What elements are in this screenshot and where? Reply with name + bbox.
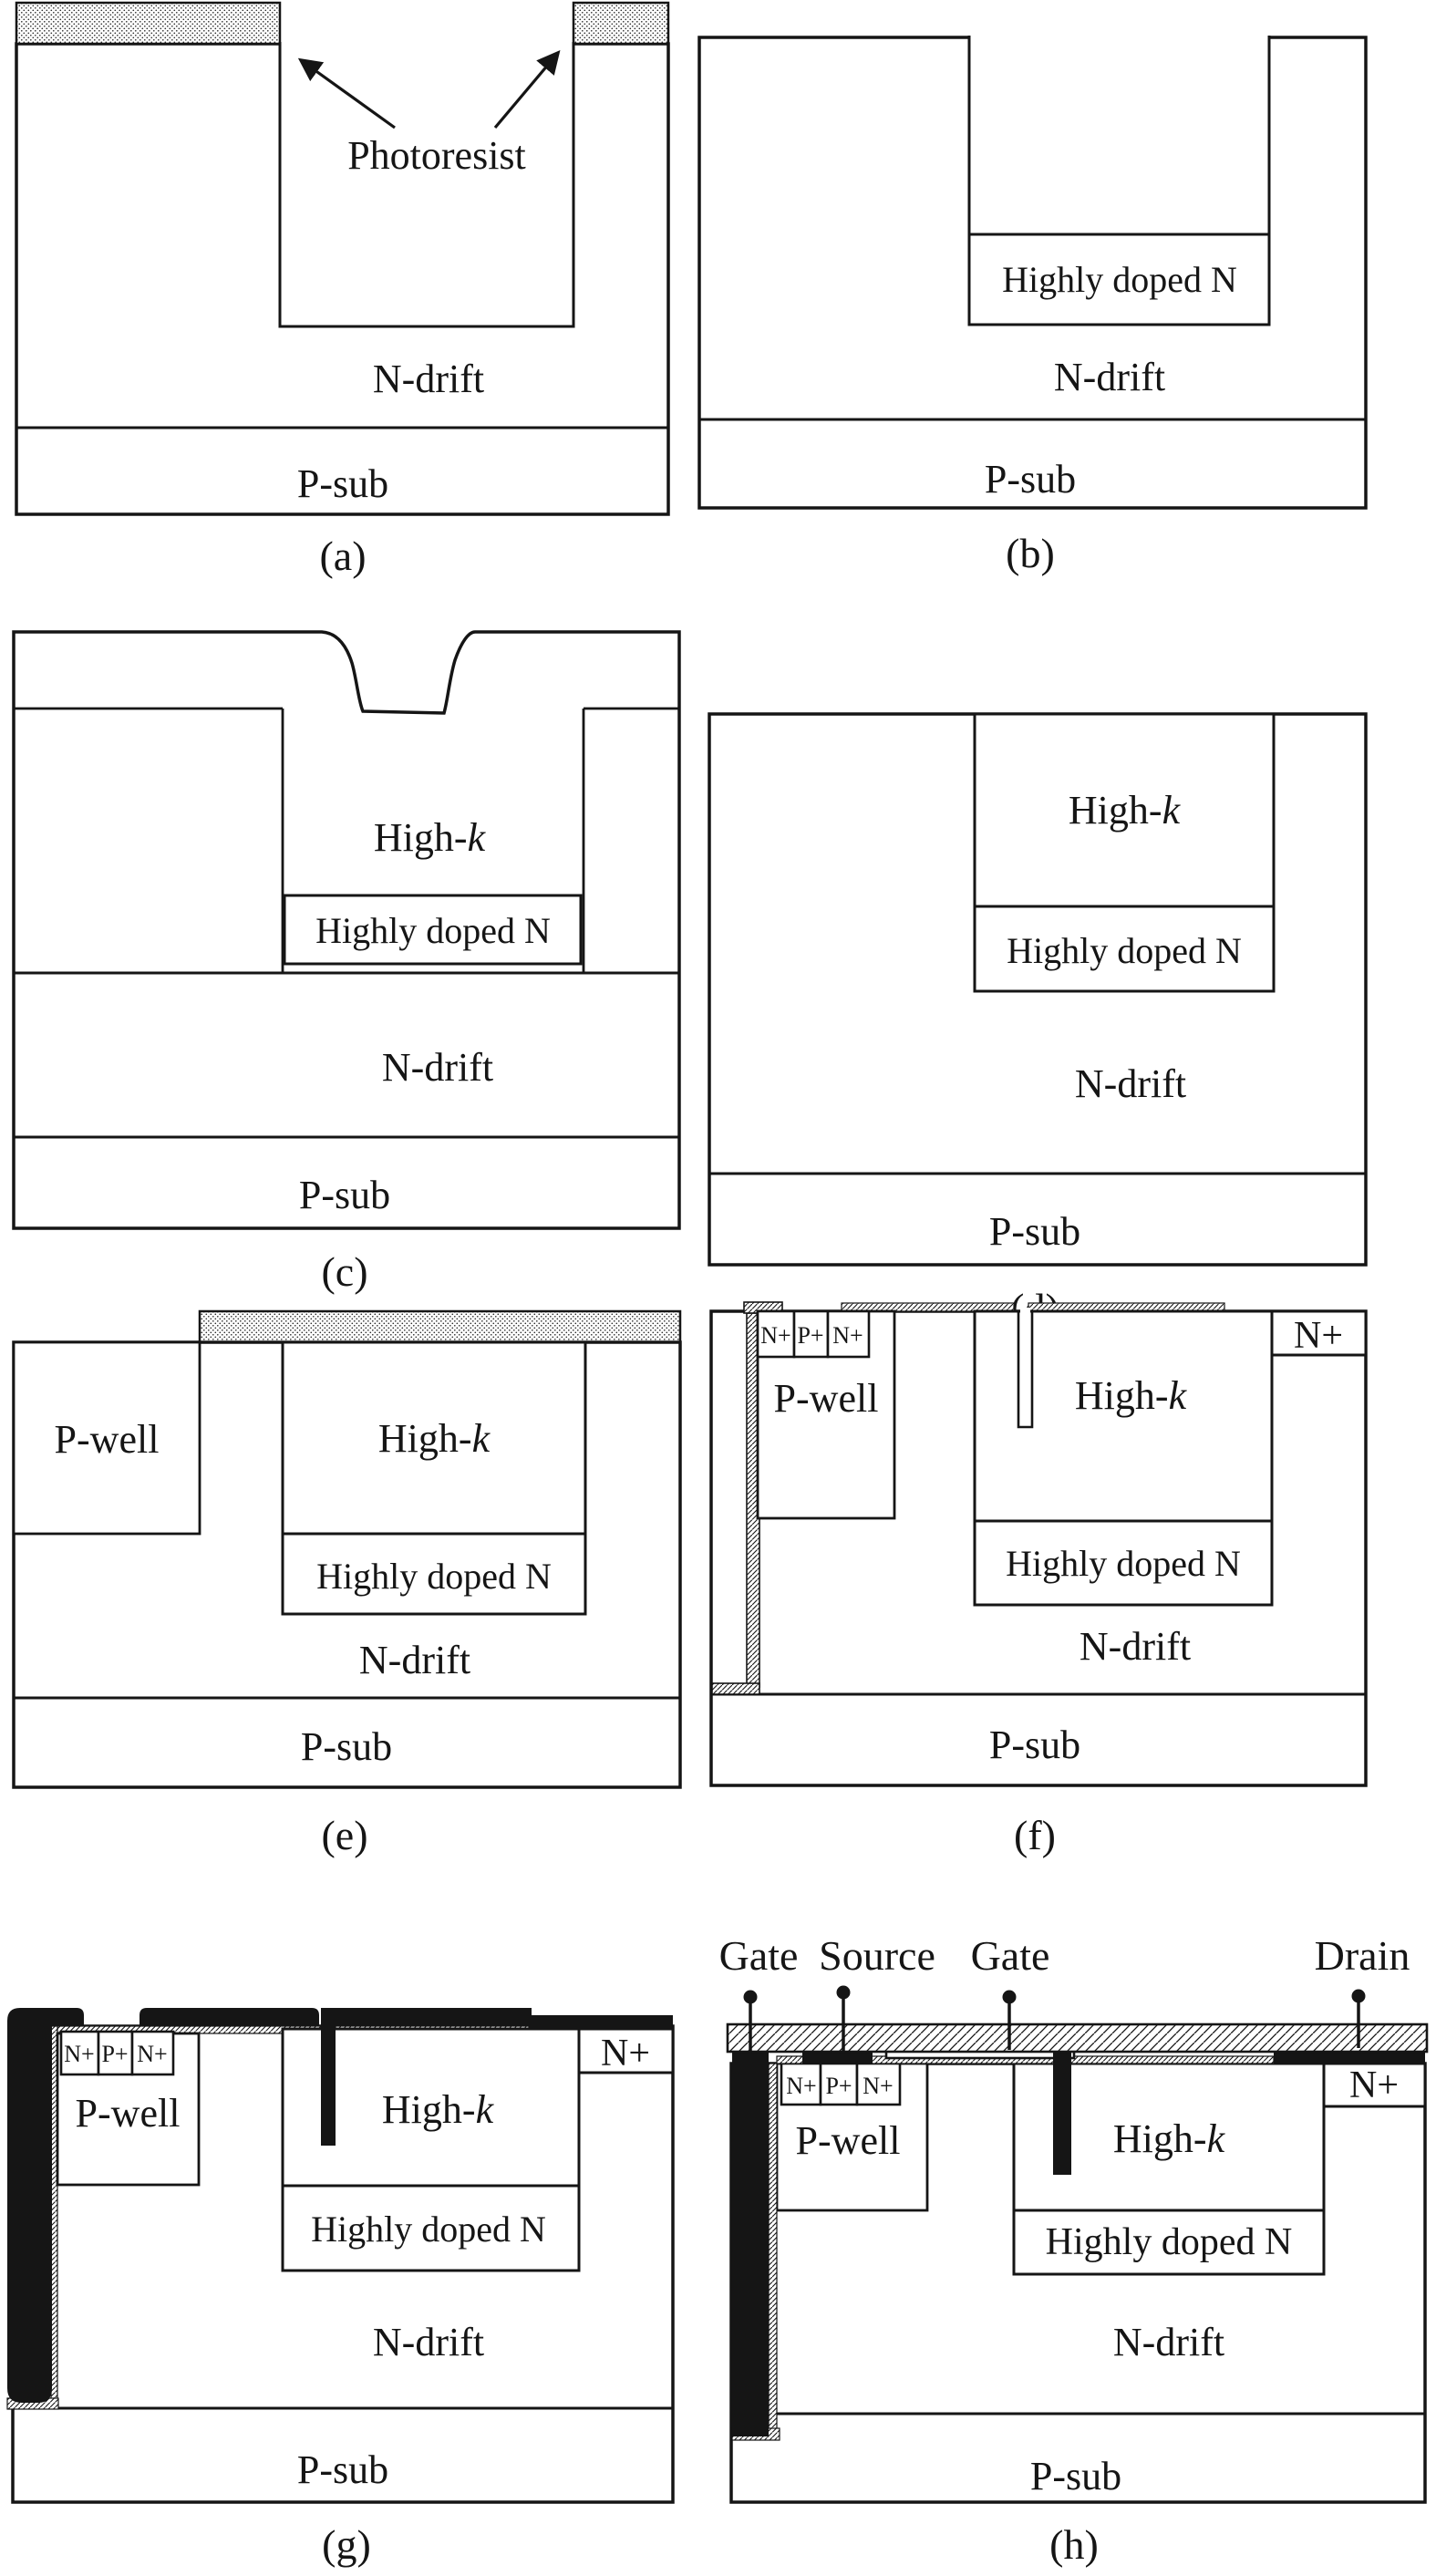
- high-k-label: High-k: [382, 2087, 495, 2132]
- panel-b: Highly doped N N-drift P-sub (b): [693, 0, 1436, 584]
- highly-doped-n-label: Highly doped N: [1046, 2221, 1293, 2263]
- p-plus-label: P+: [825, 2073, 852, 2099]
- n-drift-label: N-drift: [1054, 355, 1165, 399]
- high-k-label: High-k: [1075, 1373, 1188, 1418]
- n-drift-label: N-drift: [382, 1045, 493, 1090]
- trench-oxide-liner: [769, 2064, 777, 2436]
- gate-right-terminal-label: Gate: [971, 1932, 1050, 1979]
- panel-h: Gate Source Gate Drain N+ P+ N+ P-well H…: [693, 1910, 1436, 2576]
- highly-doped-n-label: Highly doped N: [311, 2209, 546, 2250]
- panel-tag: (h): [1049, 2521, 1099, 2568]
- p-sub-label: P-sub: [985, 457, 1076, 502]
- n-drift-label: N-drift: [373, 2320, 484, 2364]
- highly-doped-n-label: Highly doped N: [1007, 930, 1242, 971]
- highly-doped-n-label: Highly doped N: [1002, 259, 1237, 300]
- p-well-label: P-well: [796, 2118, 901, 2163]
- p-well-label: P-well: [774, 1376, 879, 1421]
- gate-slot: [1020, 1308, 1030, 1426]
- source-pin-dot: [837, 1986, 851, 2000]
- p-plus-label: P+: [101, 2041, 128, 2067]
- p-sub-label: P-sub: [297, 461, 388, 506]
- p-sub-label: P-sub: [989, 1723, 1080, 1767]
- n-plus-label: N+: [137, 2041, 167, 2067]
- n-plus-label: N+: [832, 1322, 863, 1349]
- n-drift-label: N-drift: [373, 357, 484, 401]
- high-k-label: High-k: [1113, 2116, 1226, 2161]
- source-terminal-label: Source: [819, 1932, 935, 1979]
- p-well-label: P-well: [55, 1417, 160, 1462]
- n-plus-label: N+: [760, 1322, 790, 1349]
- p-well-label: P-well: [76, 2091, 181, 2136]
- p-sub-label: P-sub: [989, 1209, 1080, 1254]
- p-sub-label: P-sub: [1030, 2454, 1121, 2498]
- n-plus-drain-label: N+: [1349, 2064, 1399, 2106]
- passivation-layer: [728, 2024, 1427, 2052]
- high-k-label: High-k: [1069, 788, 1182, 833]
- n-drift-label: N-drift: [1075, 1061, 1186, 1106]
- gate-left-pin-dot: [744, 1991, 758, 2004]
- high-k-label: High-k: [374, 815, 487, 860]
- drain-pin-dot: [1352, 1990, 1366, 2003]
- p-sub-label: P-sub: [299, 1173, 390, 1217]
- high-k-label: High-k: [378, 1416, 491, 1461]
- highly-doped-n-label: Highly doped N: [316, 1556, 552, 1597]
- p-sub-label: P-sub: [297, 2447, 388, 2492]
- panel-tag: (a): [319, 533, 366, 579]
- metal-gate-slot: [1053, 2052, 1071, 2175]
- drain-terminal-label: Drain: [1315, 1932, 1410, 1979]
- highly-doped-n-label: Highly doped N: [1006, 1543, 1241, 1584]
- trench-liner-foot: [712, 1683, 759, 1694]
- n-drift-label: N-drift: [1113, 2320, 1224, 2364]
- n-drift-label: N-drift: [359, 1638, 470, 1682]
- panel-g: N+ P+ N+ P-well High-k N+ Highly doped N…: [0, 1992, 693, 2576]
- n-plus-label: N+: [863, 2073, 893, 2099]
- panel-tag: (e): [321, 1812, 367, 1858]
- panel-tag: (g): [322, 2521, 371, 2568]
- highly-doped-n-label: Highly doped N: [315, 910, 551, 951]
- n-drift-label: N-drift: [1080, 1624, 1191, 1669]
- panel-tag: (c): [321, 1248, 367, 1295]
- implant-mask-strip: [200, 1311, 680, 1342]
- panel-f: N+ P+ N+ P-well High-k N+ Highly doped N…: [693, 1290, 1436, 1883]
- n-plus-drain-label: N+: [601, 2033, 650, 2074]
- panel-d: High-k Highly doped N N-drift P-sub (d): [693, 584, 1436, 1340]
- photoresist-label: Photoresist: [347, 133, 526, 178]
- process-flow-figure: Photoresist N-drift P-sub (a) Highly dop…: [0, 0, 1436, 2576]
- gate-left-terminal-label: Gate: [719, 1932, 799, 1979]
- p-sub-label: P-sub: [301, 1724, 392, 1769]
- metal-source-segment: [139, 2008, 319, 2026]
- panel-a: Photoresist N-drift P-sub (a): [0, 0, 693, 584]
- metal-drain-segment: [532, 2015, 673, 2029]
- p-plus-label: P+: [797, 1322, 823, 1349]
- photoresist-right-block: [573, 3, 668, 44]
- n-plus-label: N+: [786, 2073, 816, 2099]
- panel-tag: (f): [1014, 1812, 1056, 1858]
- n-plus-label: N+: [64, 2041, 94, 2067]
- metal-left-field-plate: [732, 2052, 769, 2436]
- panel-tag: (b): [1006, 530, 1055, 576]
- panel-c: High-k Highly doped N N-drift P-sub (c): [0, 584, 693, 1313]
- photoresist-left-block: [16, 3, 280, 44]
- gate-right-pin-dot: [1003, 1991, 1017, 2004]
- n-plus-drain-label: N+: [1294, 1315, 1343, 1357]
- panel-e: P-well High-k Highly doped N N-drift P-s…: [0, 1299, 693, 1883]
